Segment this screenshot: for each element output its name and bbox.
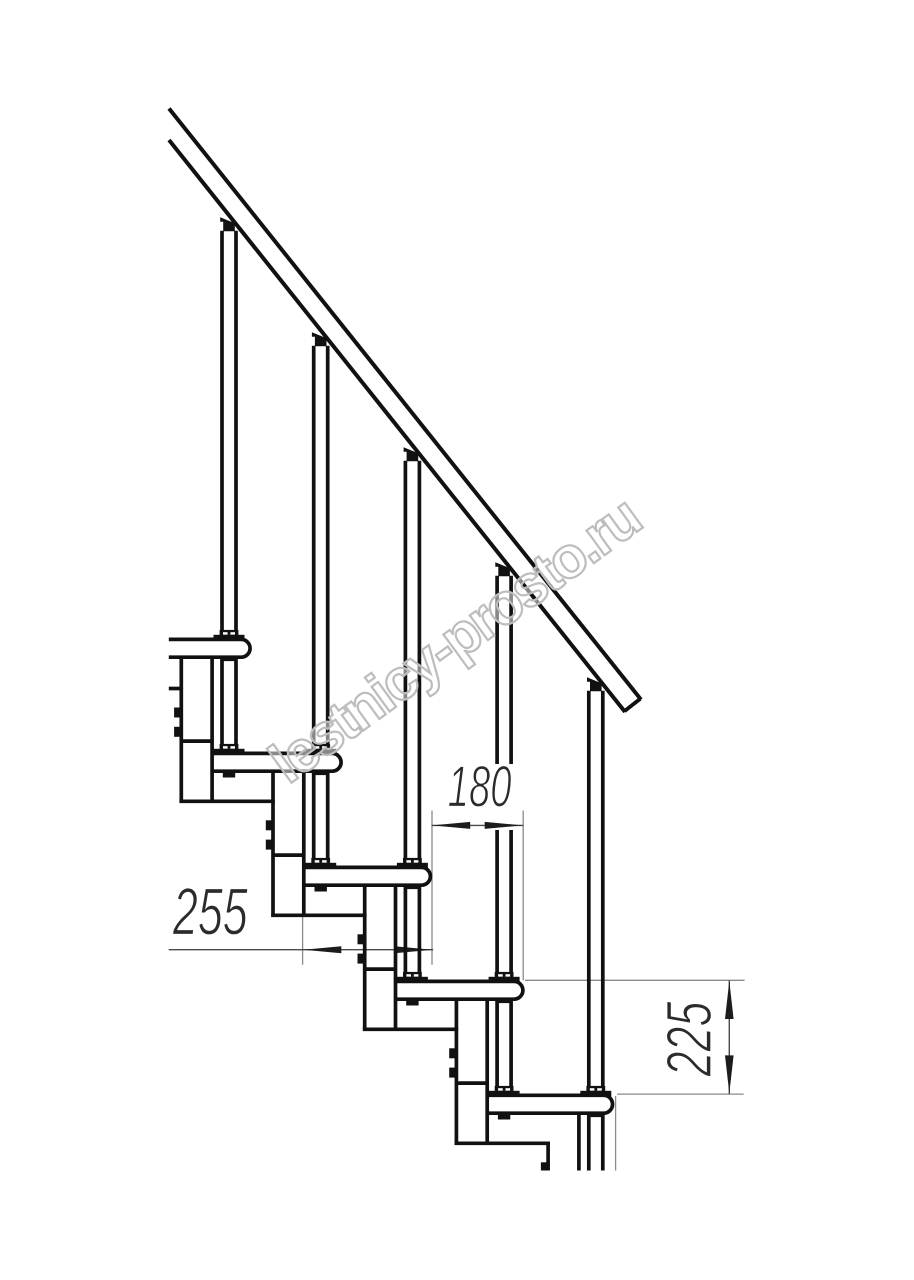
svg-text:180: 180 [448,756,512,820]
svg-text:255: 255 [172,875,248,950]
svg-text:225: 225 [653,1001,725,1077]
